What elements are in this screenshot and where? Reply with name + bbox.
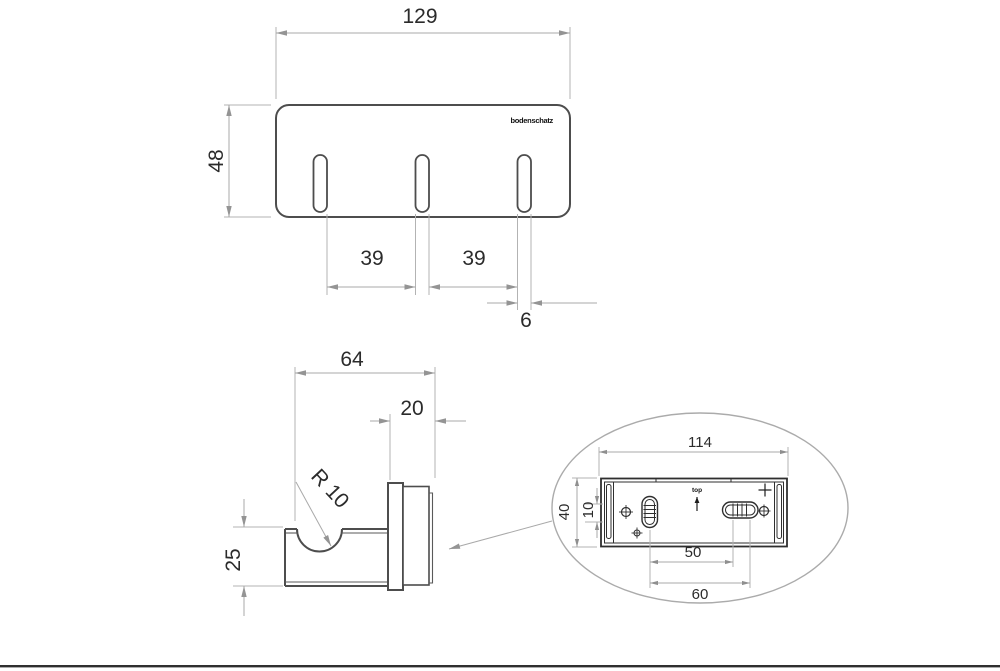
dim-slot-width: 6 <box>487 214 597 332</box>
dim-slot-offset-label: 10 <box>580 502 597 519</box>
hook-slot-3 <box>518 155 532 212</box>
dim-hook-spacing-right-label: 39 <box>462 247 485 270</box>
dim-plate-width: 114 <box>599 434 788 476</box>
dim-hook-height: 25 <box>222 499 283 616</box>
drawing-svg: bodenschatz 129 48 39 <box>0 0 1000 671</box>
dim-slot-width-label: 6 <box>520 309 532 332</box>
dim-depth-label: 64 <box>340 348 364 371</box>
side-view: 64 20 25 R 10 <box>222 348 466 616</box>
dim-hook-height-label: 25 <box>222 548 245 571</box>
dim-mount-depth: 20 <box>370 397 466 480</box>
hook-notch-arc <box>297 529 342 552</box>
top-orientation-label: top <box>692 487 702 494</box>
dim-overall-height: 48 <box>205 105 271 217</box>
dim-plate-width-label: 114 <box>688 434 712 451</box>
top-orientation-marker: top <box>692 487 702 511</box>
dim-mount-depth-label: 20 <box>400 397 423 420</box>
side-wall-plate <box>403 487 429 586</box>
dim-hook-spacing-left-label: 39 <box>360 247 383 270</box>
rear-right-edge-slot <box>777 485 782 539</box>
rear-left-edge-slot <box>607 485 612 539</box>
hook-slot-2 <box>416 155 430 212</box>
detail-leader-arrow <box>449 521 552 549</box>
brand-logo: bodenschatz <box>510 116 553 125</box>
dim-overall-width: 129 <box>276 5 570 99</box>
screw-hole-left-icon <box>619 505 633 519</box>
dim-hole-pitch-inner-label: 50 <box>685 544 702 561</box>
hook-slot-1 <box>314 155 328 212</box>
rear-detail-view: top 114 40 10 <box>449 413 848 603</box>
dim-overall-width-label: 129 <box>402 5 437 28</box>
side-mount-flange <box>388 483 403 590</box>
technical-drawing-page: bodenschatz 129 48 39 <box>0 0 1000 671</box>
center-mark-icon <box>759 484 772 497</box>
rear-horizontal-slot <box>723 502 759 518</box>
screw-hole-small-icon <box>632 528 643 539</box>
side-hook-arm <box>285 529 388 586</box>
dim-slot-offset: 10 <box>580 488 603 538</box>
screw-hole-right-icon <box>758 505 771 518</box>
dim-hook-spacing: 39 39 <box>327 214 518 295</box>
dim-hook-radius-label: R 10 <box>306 465 353 513</box>
footer-rule <box>0 665 1000 667</box>
dim-overall-height-label: 48 <box>205 149 228 172</box>
dim-hole-pitch-outer-label: 60 <box>692 586 709 603</box>
rear-vertical-slot <box>642 497 658 528</box>
front-view: bodenschatz 129 48 39 <box>205 5 597 332</box>
dim-plate-height-label: 40 <box>556 504 573 521</box>
